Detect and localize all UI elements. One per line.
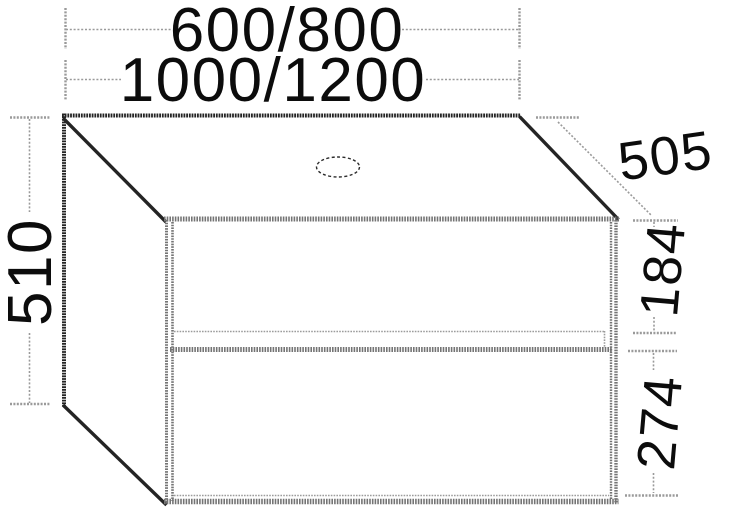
dimension-depth-505: 505	[536, 118, 717, 216]
lower-drawer-height-label: 274	[626, 373, 694, 472]
upper-drawer-height-label: 184	[629, 220, 697, 319]
depth-edge-bottom-left	[63, 405, 167, 505]
dimension-upper-drawer-184: 184	[629, 220, 697, 333]
depth-edge-top-left	[63, 118, 166, 222]
overall-height-label: 510	[0, 218, 65, 326]
drawing-stage: 600/800 1000/1200 510 505	[0, 0, 734, 508]
vanity-dimension-drawing: 600/800 1000/1200 510 505	[0, 0, 734, 508]
dimension-lower-drawer-274: 274	[625, 351, 694, 496]
depth-label: 505	[614, 120, 716, 193]
width-variants-bottom-label: 1000/1200	[120, 46, 427, 115]
dimension-height-510: 510	[0, 118, 65, 405]
tap-hole-cutout	[317, 157, 360, 177]
dimension-width-1000-1200: 1000/1200	[66, 46, 520, 115]
cabinet-outline	[62, 114, 619, 506]
